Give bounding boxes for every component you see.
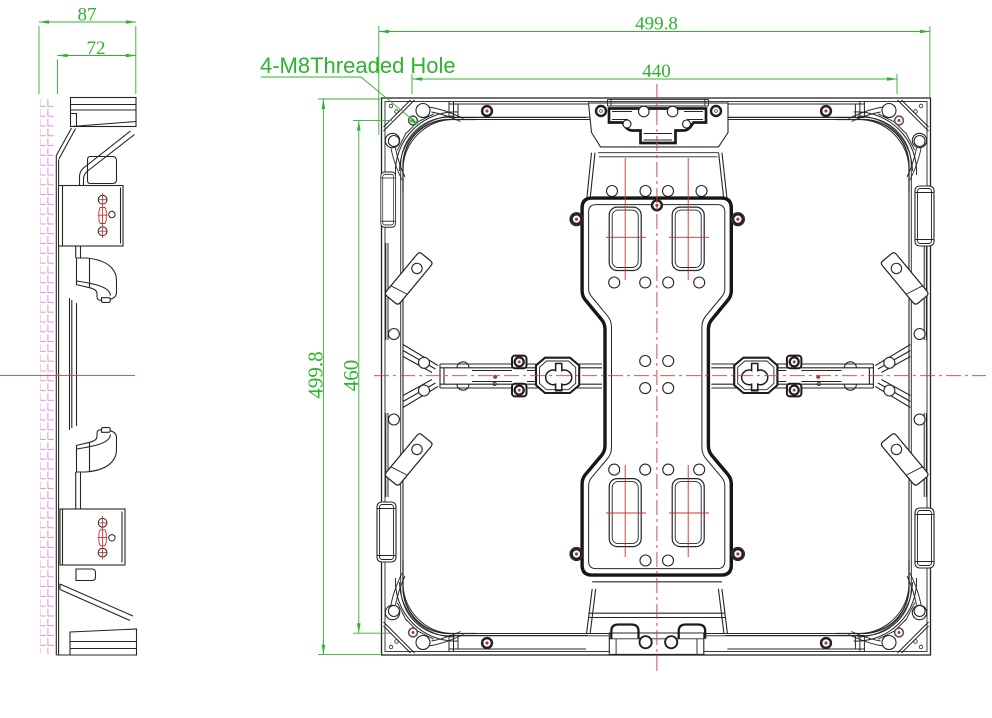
svg-text:4-M8Threaded Hole: 4-M8Threaded Hole [260,53,456,78]
svg-text:440: 440 [642,61,671,82]
svg-text:460: 460 [339,360,363,392]
svg-text:72: 72 [87,38,106,59]
svg-text:499.8: 499.8 [635,14,678,35]
svg-text:87: 87 [78,5,97,26]
svg-text:499.8: 499.8 [304,351,328,398]
